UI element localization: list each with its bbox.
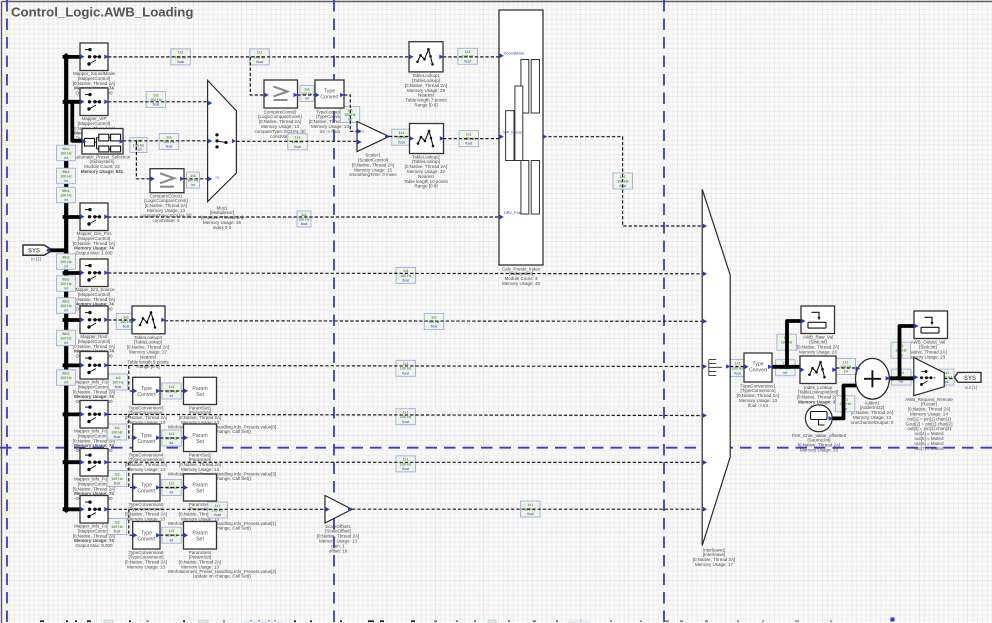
svg-text:100 Hz: 100 Hz xyxy=(111,477,123,481)
svg-text:1x1: 1x1 xyxy=(169,432,175,436)
svg-text:float: float xyxy=(402,467,409,471)
svg-text:int: int xyxy=(64,286,68,290)
svg-text:Set: Set xyxy=(196,439,204,445)
svg-text:index # 0: index # 0 xyxy=(213,225,232,230)
svg-text:96x1: 96x1 xyxy=(62,277,70,281)
svg-text:100 Hz: 100 Hz xyxy=(60,193,72,197)
svg-text:1x1: 1x1 xyxy=(431,315,437,319)
svg-text:float: float xyxy=(527,512,534,516)
svg-text:100 Hz: 100 Hz xyxy=(60,174,72,178)
svg-text:int: int xyxy=(64,308,68,312)
svg-text:float: float xyxy=(734,372,741,376)
svg-text:float -> int: float -> int xyxy=(748,403,769,408)
svg-text:1x1: 1x1 xyxy=(114,520,120,524)
svg-text:1x1: 1x1 xyxy=(114,472,120,476)
svg-text:96x1: 96x1 xyxy=(62,189,70,193)
svg-text:100 Hz: 100 Hz xyxy=(400,367,412,371)
svg-text:int: int xyxy=(899,380,903,384)
svg-text:1x1: 1x1 xyxy=(301,213,307,217)
svg-text:Set: Set xyxy=(196,489,204,495)
svg-text:1x1: 1x1 xyxy=(735,362,741,366)
svg-text:96x1: 96x1 xyxy=(62,332,70,336)
svg-text:float: float xyxy=(114,482,121,486)
svg-text:Set: Set xyxy=(196,537,204,543)
svg-text:100 Hz: 100 Hz xyxy=(60,282,72,286)
svg-text:100 Hz: 100 Hz xyxy=(400,274,412,278)
svg-text:100 Hz: 100 Hz xyxy=(60,336,72,340)
svg-text:100 Hz: 100 Hz xyxy=(111,430,123,434)
svg-text:float: float xyxy=(431,325,438,329)
svg-text:int: int xyxy=(945,380,949,384)
svg-text:float: float xyxy=(114,435,121,439)
svg-text:out [1]: out [1] xyxy=(965,385,978,390)
svg-text:100 Hz: 100 Hz xyxy=(111,525,123,529)
svg-text:int: int xyxy=(170,538,174,542)
svg-text:1x1: 1x1 xyxy=(527,503,533,507)
svg-text:1x1: 1x1 xyxy=(190,174,196,178)
svg-text:Convert: Convert xyxy=(137,392,156,398)
svg-text:1x1: 1x1 xyxy=(466,132,472,136)
svg-text:Memory Usage: 23: Memory Usage: 23 xyxy=(799,349,838,354)
svg-text:96x1: 96x1 xyxy=(62,299,70,303)
svg-text:Control_Logic.AWB_Loading: Control_Logic.AWB_Loading xyxy=(11,5,193,20)
svg-text:Memory Usage: 17: Memory Usage: 17 xyxy=(695,562,734,567)
svg-text:int: int xyxy=(64,264,68,268)
svg-text:Memory Usage: 13: Memory Usage: 13 xyxy=(127,565,166,570)
svg-text:int: int xyxy=(170,394,174,398)
svg-text:float: float xyxy=(177,60,184,64)
svg-text:1x1: 1x1 xyxy=(465,50,471,54)
svg-text:SoundMode: SoundMode xyxy=(504,52,524,56)
svg-text:100 Hz: 100 Hz xyxy=(60,376,72,380)
svg-text:int: int xyxy=(170,441,174,445)
svg-text:Output Max: 1.000: Output Max: 1.000 xyxy=(75,251,113,256)
svg-text:1x1: 1x1 xyxy=(115,376,121,380)
svg-text:int: int xyxy=(305,97,309,101)
svg-text:offset: 10: offset: 10 xyxy=(329,548,348,553)
svg-text:DRV_Pos: DRV_Pos xyxy=(504,211,521,215)
svg-text:1x1: 1x1 xyxy=(123,315,129,319)
svg-text:int: int xyxy=(64,341,68,345)
svg-text:float: float xyxy=(294,145,301,149)
svg-text:Range [0 6]: Range [0 6] xyxy=(414,103,437,108)
svg-text:float: float xyxy=(402,420,409,424)
svg-text:100 Hz: 100 Hz xyxy=(60,151,72,155)
svg-text:float: float xyxy=(402,371,409,375)
svg-text:float: float xyxy=(115,385,122,389)
svg-text:VIP_Focus: VIP_Focus xyxy=(503,131,522,135)
svg-text:float: float xyxy=(123,325,130,329)
svg-text:float: float xyxy=(464,59,471,63)
svg-text:int: int xyxy=(64,198,68,202)
svg-text:constValue: 9: constValue: 9 xyxy=(153,218,180,223)
svg-text:1x1: 1x1 xyxy=(403,411,409,415)
svg-text:Convert: Convert xyxy=(749,368,768,374)
svg-text:100 Hz: 100 Hz xyxy=(298,217,310,221)
svg-text:1x1: 1x1 xyxy=(403,269,409,273)
svg-text:1x1: 1x1 xyxy=(399,131,405,135)
svg-text:1x1: 1x1 xyxy=(169,385,175,389)
svg-text:Memory Usage: 23: Memory Usage: 23 xyxy=(800,448,839,453)
svg-text:Memory Usage: 13: Memory Usage: 13 xyxy=(127,517,166,522)
svg-text:96x1: 96x1 xyxy=(62,371,70,375)
svg-text:int: int xyxy=(191,183,195,187)
svg-text:float: float xyxy=(256,60,263,64)
svg-text:1x1: 1x1 xyxy=(295,136,301,140)
svg-text:SYS: SYS xyxy=(28,249,40,255)
svg-text:out[7] = Muted: out[7] = Muted xyxy=(915,446,944,451)
svg-text:Memory Usage: 831: Memory Usage: 831 xyxy=(81,169,124,174)
svg-text:Convert: Convert xyxy=(137,439,156,445)
svg-text:int: int xyxy=(784,371,788,375)
svg-text:1x1: 1x1 xyxy=(403,458,409,462)
svg-text:In [1]: In [1] xyxy=(31,257,41,262)
svg-text:Update on change, Call Set(): Update on change, Call Set() xyxy=(193,574,252,579)
svg-text:float: float xyxy=(301,222,308,226)
svg-text:1x1: 1x1 xyxy=(215,504,221,508)
svg-text:Memory Usage: 13: Memory Usage: 13 xyxy=(127,467,166,472)
svg-text:Range [0 9]: Range [0 9] xyxy=(414,184,437,189)
svg-text:96x1: 96x1 xyxy=(62,170,70,174)
svg-text:100 Hz: 100 Hz xyxy=(60,304,72,308)
svg-text:96x1: 96x1 xyxy=(62,255,70,259)
svg-text:1x1: 1x1 xyxy=(114,426,120,430)
svg-text:Memory Usage: 48: Memory Usage: 48 xyxy=(502,281,541,286)
svg-text:SYS: SYS xyxy=(964,376,976,382)
svg-text:float: float xyxy=(398,140,405,144)
svg-text:float: float xyxy=(114,530,121,534)
svg-text:1x1: 1x1 xyxy=(304,87,310,91)
svg-text:Convert: Convert xyxy=(137,537,156,543)
svg-text:int: int xyxy=(170,491,174,495)
svg-text:Convert: Convert xyxy=(320,95,339,101)
svg-text:1x1: 1x1 xyxy=(169,529,175,533)
svg-text:100 Hz: 100 Hz xyxy=(400,415,412,419)
svg-text:96x1: 96x1 xyxy=(62,147,70,151)
svg-text:1x1: 1x1 xyxy=(178,51,184,55)
svg-text:float: float xyxy=(166,145,173,149)
svg-text:Convert: Convert xyxy=(137,489,156,495)
svg-text:float: float xyxy=(153,103,160,107)
svg-text:1x1: 1x1 xyxy=(166,135,172,139)
svg-text:int -> float: int -> float xyxy=(320,129,341,134)
svg-text:int: int xyxy=(64,156,68,160)
svg-text:1x1: 1x1 xyxy=(257,51,263,55)
svg-text:int: int xyxy=(844,370,848,374)
svg-text:Output Max: 9.000: Output Max: 9.000 xyxy=(75,543,113,548)
svg-text:no: no xyxy=(216,176,220,180)
svg-text:100 Hz: 100 Hz xyxy=(133,143,145,147)
svg-text:1x1: 1x1 xyxy=(843,360,849,364)
svg-text:100 Hz: 100 Hz xyxy=(60,260,72,264)
svg-text:smoothingTime: 0 msec: smoothingTime: 0 msec xyxy=(349,172,397,177)
svg-text:1x1: 1x1 xyxy=(153,93,159,97)
svg-text:int: int xyxy=(64,179,68,183)
svg-text:100 Hz: 100 Hz xyxy=(112,380,124,384)
svg-text:float: float xyxy=(465,142,472,146)
svg-text:float: float xyxy=(214,513,221,517)
svg-text:d: d xyxy=(362,130,364,134)
svg-text:float: float xyxy=(403,279,410,283)
svg-text:1x1: 1x1 xyxy=(169,481,175,485)
svg-text:Set: Set xyxy=(196,392,204,398)
svg-text:int: int xyxy=(64,380,68,384)
svg-text:constValu: constValu xyxy=(270,134,290,139)
svg-text:oneChannelOutput: 0: oneChannelOutput: 0 xyxy=(851,420,894,425)
